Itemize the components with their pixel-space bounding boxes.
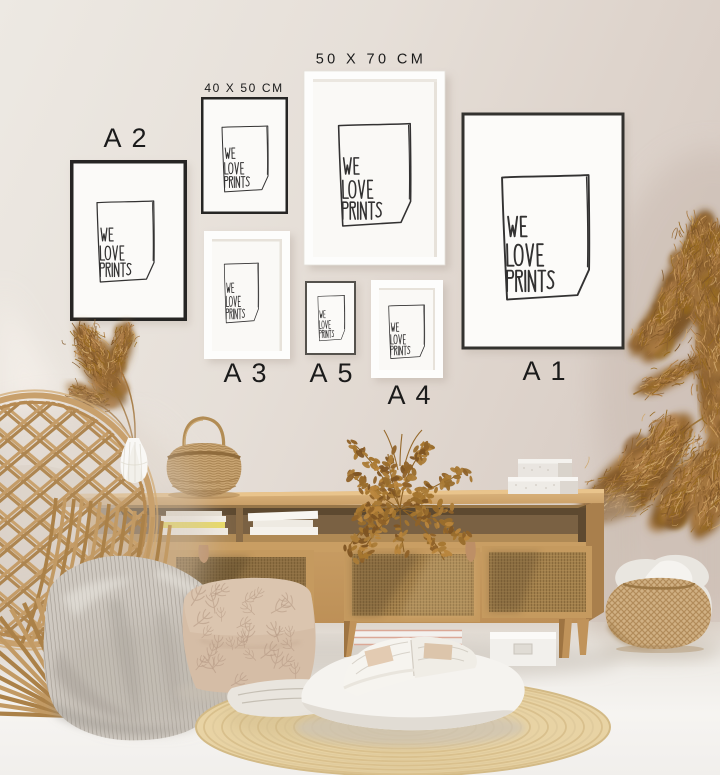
svg-text:A 2: A 2 (103, 123, 148, 153)
svg-text:40 X 50 CM: 40 X 50 CM (204, 81, 283, 95)
svg-text:A 5: A 5 (309, 358, 354, 388)
svg-text:A 4: A 4 (387, 380, 432, 410)
svg-text:50 X 70 CM: 50 X 70 CM (316, 52, 427, 68)
svg-text:A 1: A 1 (522, 356, 567, 386)
svg-text:A 3: A 3 (223, 358, 268, 388)
